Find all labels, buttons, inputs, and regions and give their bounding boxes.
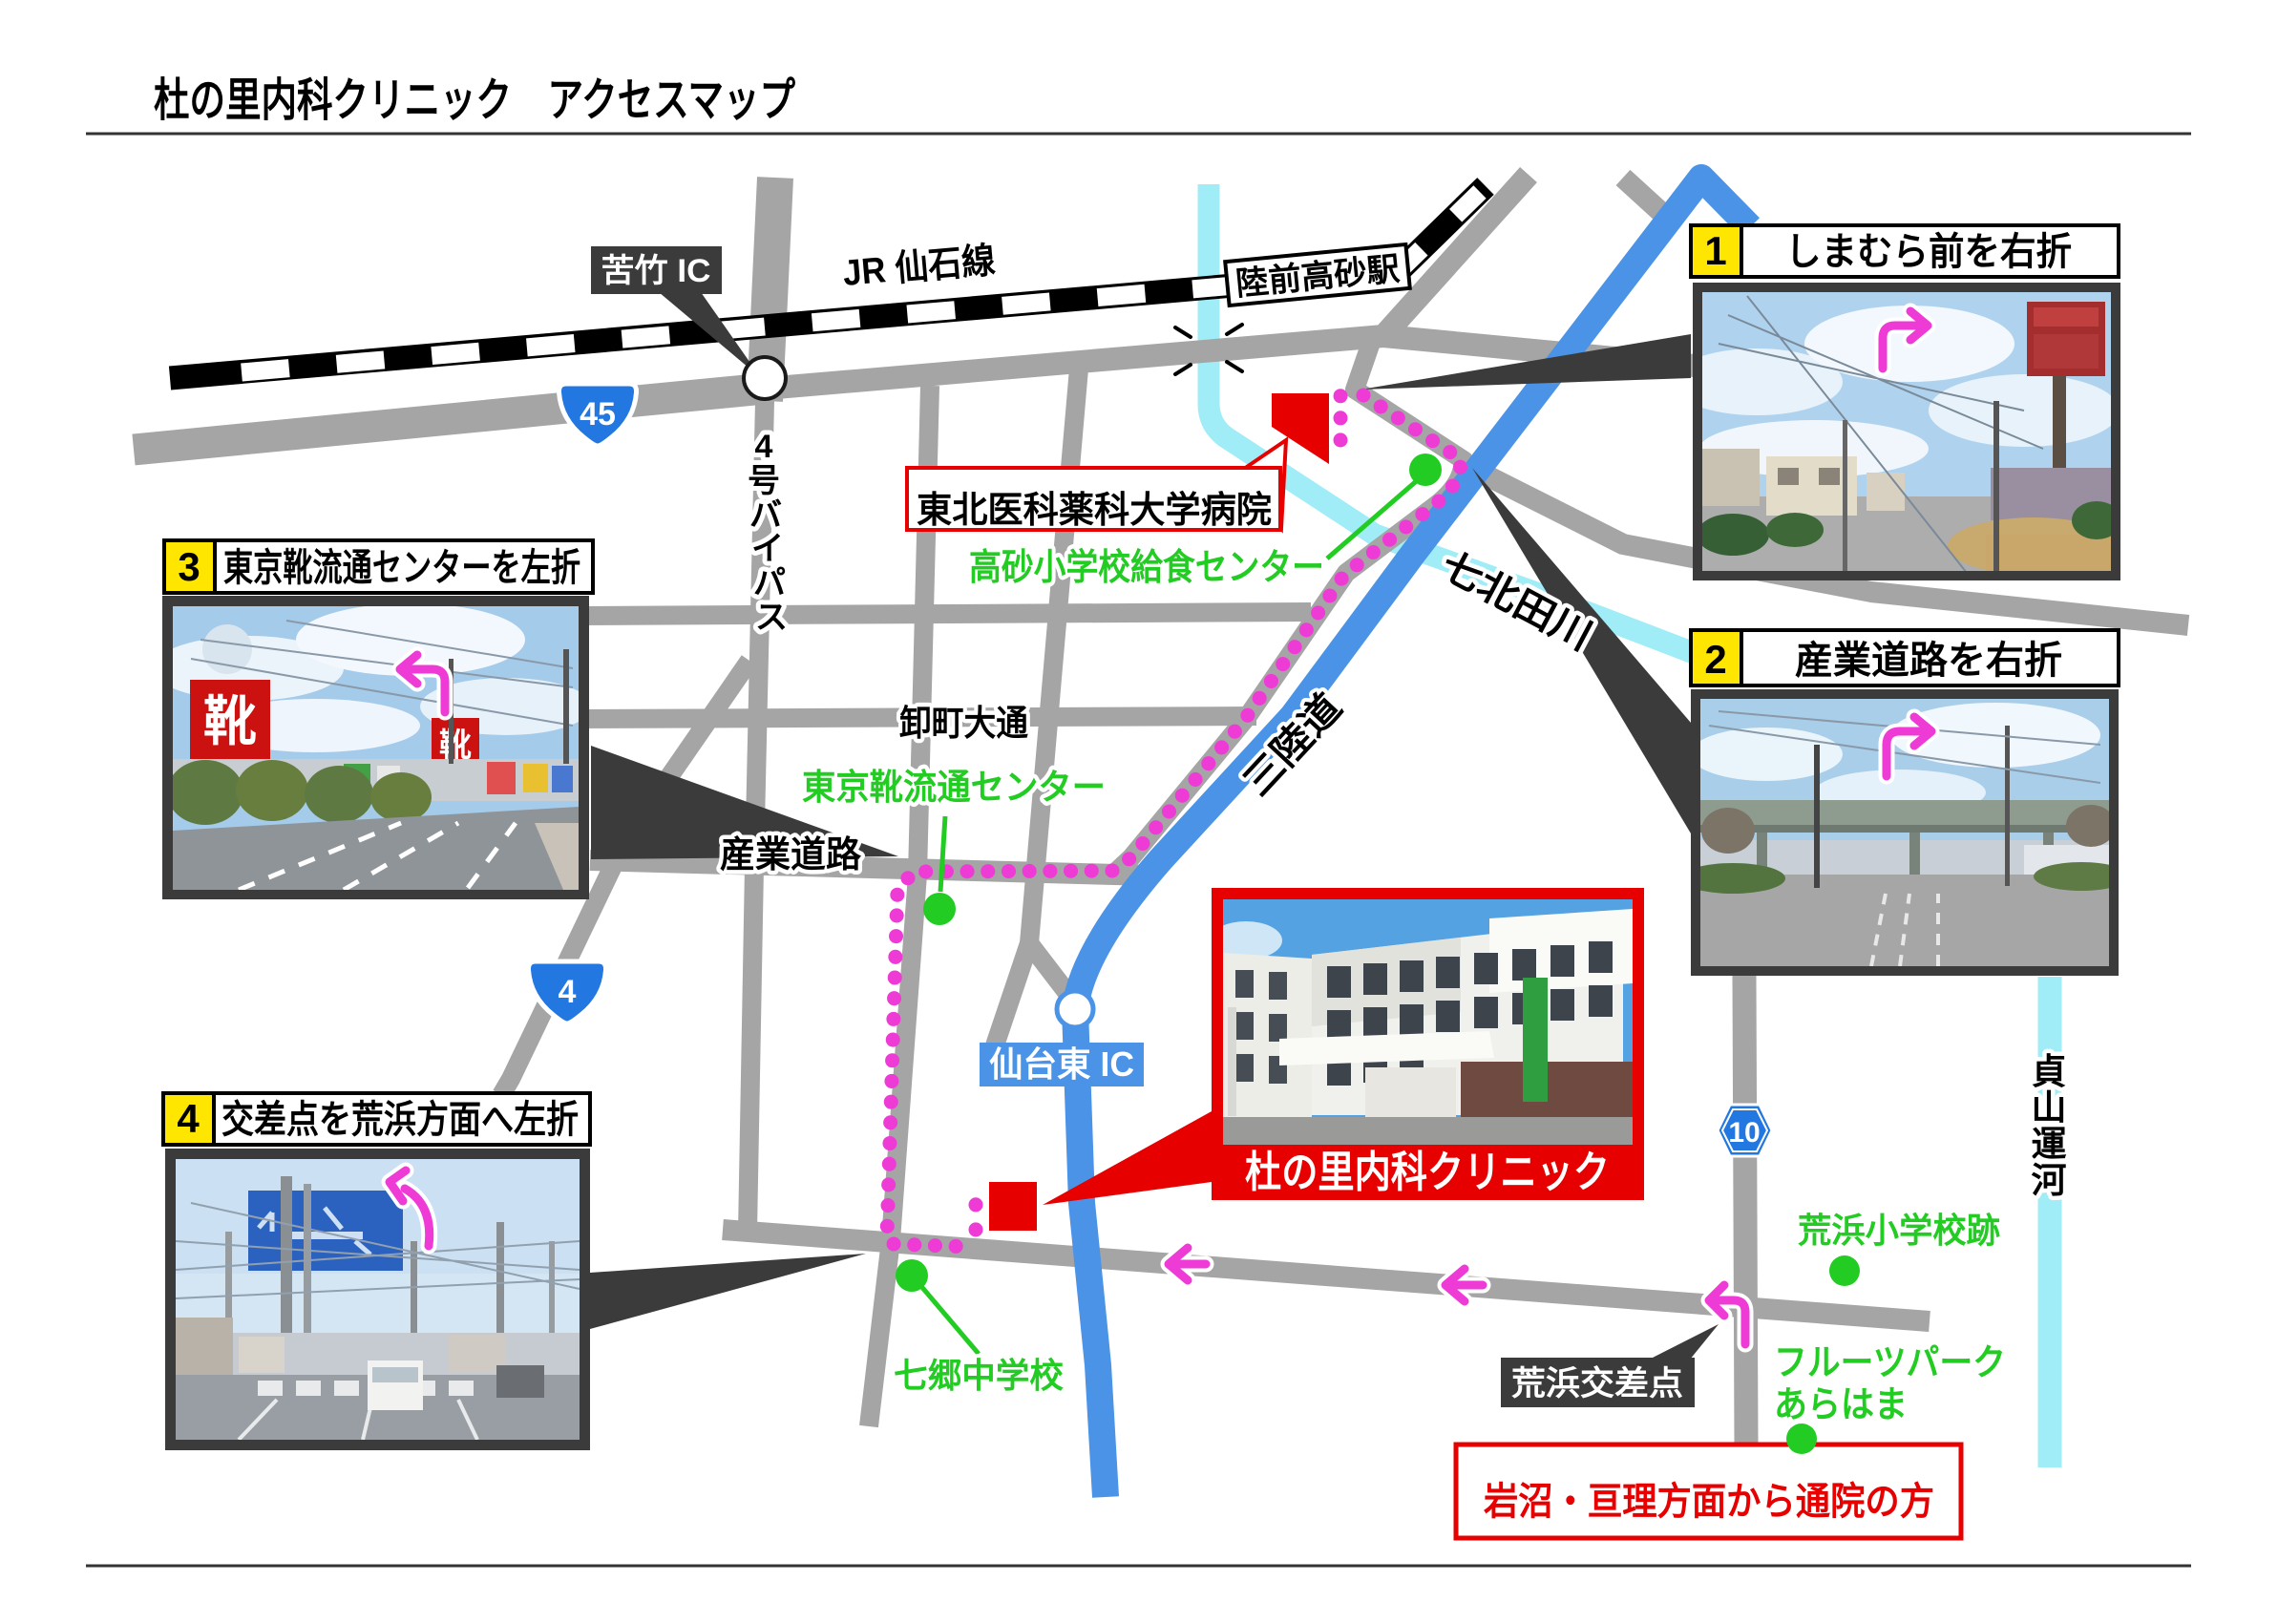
svg-text:七郷中学校: 七郷中学校 (894, 1356, 1064, 1395)
svg-text:杜の里内科クリニック アクセスマップ: 杜の里内科クリニック アクセスマップ (154, 75, 795, 126)
svg-text:バ: バ (749, 497, 782, 534)
svg-text:杜の里内科クリニック: 杜の里内科クリニック (1245, 1148, 1610, 1196)
svg-text:号: 号 (748, 463, 780, 499)
svg-text:交差点を荒浜方面へ左折: 交差点を荒浜方面へ左折 (221, 1099, 579, 1141)
svg-text:産業道路: 産業道路 (720, 835, 862, 875)
svg-text:山: 山 (2032, 1088, 2067, 1128)
svg-text:荒浜交差点: 荒浜交差点 (1511, 1364, 1683, 1403)
svg-text:4: 4 (559, 974, 577, 1010)
svg-text:河: 河 (2032, 1161, 2067, 1200)
svg-text:2: 2 (1704, 637, 1726, 682)
svg-text:東京靴流通センターを左折: 東京靴流通センターを左折 (223, 547, 580, 589)
svg-text:4: 4 (755, 429, 773, 465)
svg-text:卸町大通: 卸町大通 (899, 704, 1028, 743)
svg-text:靴: 靴 (439, 728, 472, 764)
svg-text:貞: 貞 (2032, 1052, 2067, 1091)
svg-text:産業道路を右折: 産業道路を右折 (1795, 640, 2062, 682)
svg-text:10: 10 (1728, 1117, 1760, 1149)
svg-text:フルーツパーク: フルーツパーク (1774, 1343, 2006, 1383)
svg-text:岩沼・亘理方面から通院の方: 岩沼・亘理方面から通院の方 (1484, 1481, 1934, 1523)
svg-text:ス: ス (755, 600, 788, 636)
svg-text:運: 運 (2032, 1125, 2067, 1164)
svg-text:しまむら前を右折: しまむら前を右折 (1785, 231, 2072, 273)
svg-text:高砂小学校給食センター: 高砂小学校給食センター (969, 547, 1324, 588)
svg-text:靴: 靴 (203, 691, 257, 751)
svg-text:45: 45 (580, 396, 616, 432)
svg-text:仙台東 IC: 仙台東 IC (989, 1044, 1134, 1084)
svg-text:あらはま: あらはま (1774, 1385, 1908, 1425)
svg-text:苦竹 IC: 苦竹 IC (601, 253, 711, 289)
svg-text:4: 4 (177, 1096, 200, 1141)
svg-text:イ: イ (751, 531, 784, 567)
svg-text:1: 1 (1704, 228, 1726, 273)
svg-text:3: 3 (178, 544, 200, 589)
svg-text:東北医科薬科大学病院: 東北医科薬科大学病院 (917, 490, 1272, 531)
svg-text:パ: パ (753, 565, 786, 601)
svg-text:東京靴流通センター: 東京靴流通センター (802, 768, 1106, 807)
svg-text:荒浜小学校跡: 荒浜小学校跡 (1798, 1211, 2000, 1250)
